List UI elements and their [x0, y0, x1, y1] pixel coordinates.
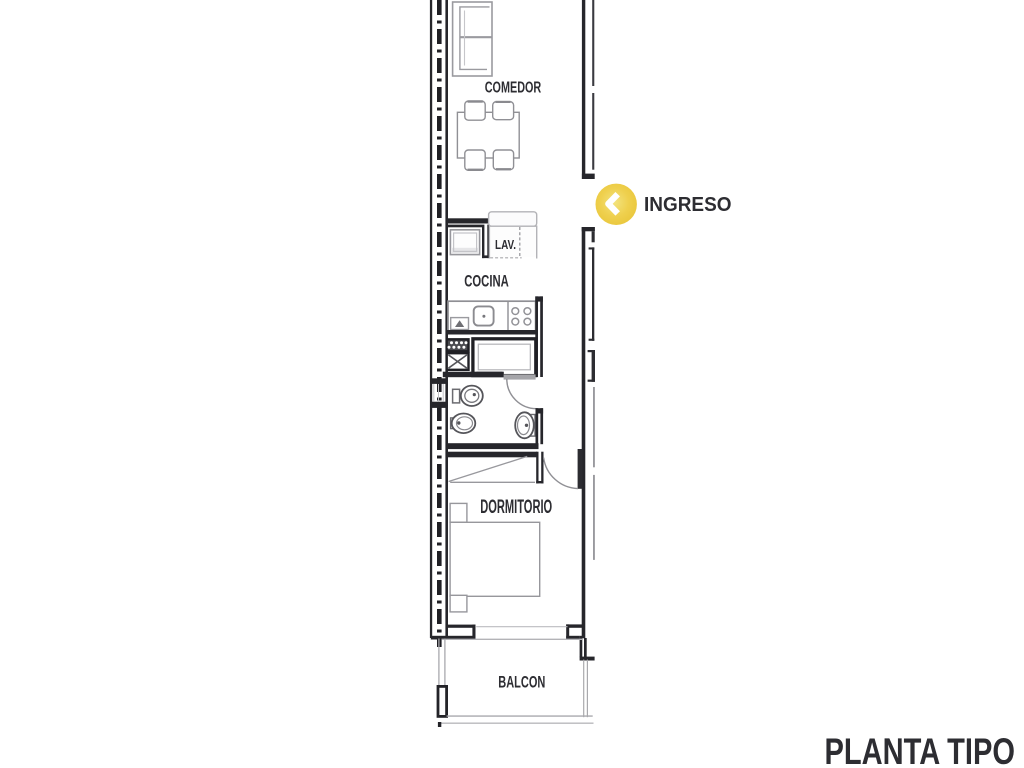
svg-text:BALCON: BALCON	[498, 672, 545, 691]
svg-text:INGRESO: INGRESO	[644, 193, 732, 216]
svg-text:DORMITORIO: DORMITORIO	[480, 497, 552, 518]
svg-text:COCINA: COCINA	[464, 271, 509, 290]
svg-text:LAV.: LAV.	[495, 237, 516, 252]
svg-text:COMEDOR: COMEDOR	[485, 80, 542, 97]
svg-text:PLANTA TIPO: PLANTA TIPO	[825, 730, 1016, 768]
